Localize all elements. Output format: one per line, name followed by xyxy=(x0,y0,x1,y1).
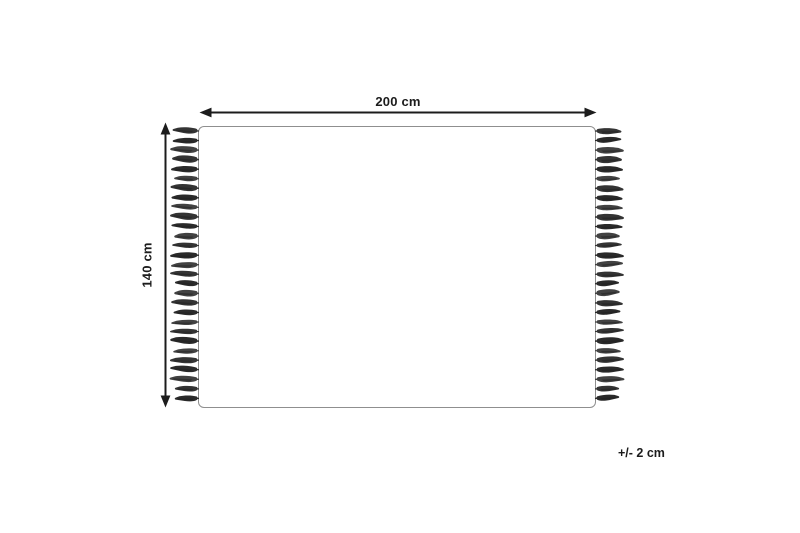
rug-outline xyxy=(198,126,596,408)
width-dimension-label: 200 cm xyxy=(199,94,597,109)
rug-dimension-diagram: 200 cm 140 cm +/- 2 cm xyxy=(0,0,800,533)
tolerance-label: +/- 2 cm xyxy=(618,446,665,460)
height-dimension-label: 140 cm xyxy=(140,242,155,287)
height-dimension-arrow xyxy=(157,122,174,408)
rug-tassels-right xyxy=(595,124,629,410)
